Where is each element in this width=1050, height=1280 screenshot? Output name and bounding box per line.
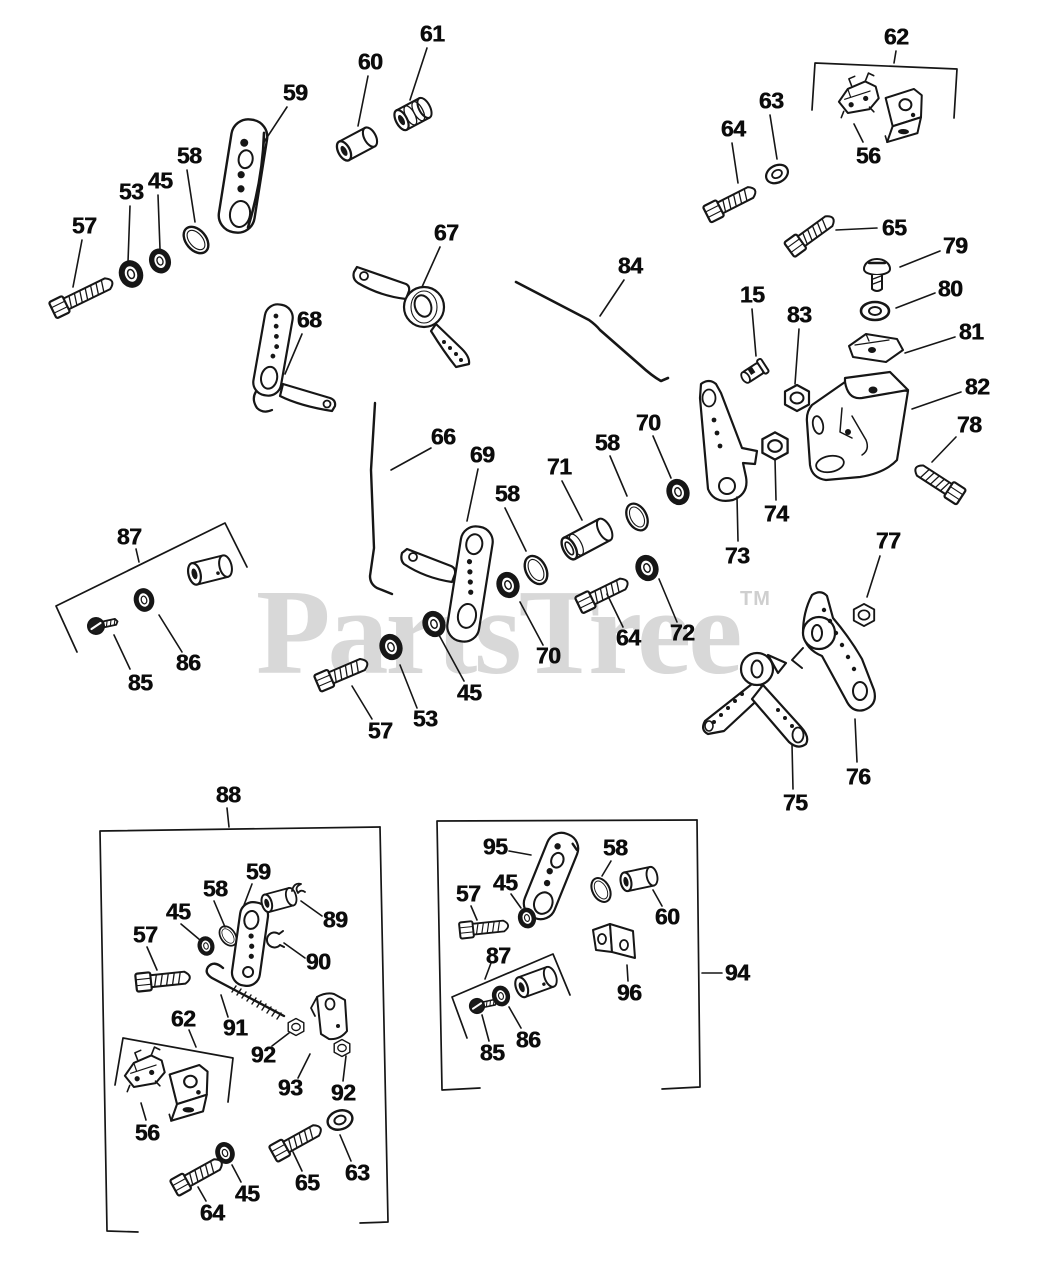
callout-57: 57	[72, 215, 97, 238]
callout-95: 95	[483, 836, 508, 859]
callout-59: 59	[246, 861, 271, 884]
callout-86: 86	[176, 652, 201, 675]
callout-45: 45	[493, 872, 518, 895]
callout-81: 81	[959, 321, 984, 344]
callout-78: 78	[957, 414, 982, 437]
callout-layer: 5753455859606162566364657980818215837867…	[0, 0, 1050, 1280]
callout-64: 64	[616, 627, 641, 650]
callout-93: 93	[278, 1077, 303, 1100]
callout-58: 58	[603, 837, 628, 860]
callout-65: 65	[295, 1172, 320, 1195]
callout-67: 67	[434, 222, 459, 245]
callout-15: 15	[740, 284, 765, 307]
callout-69: 69	[470, 444, 495, 467]
callout-71: 71	[547, 456, 572, 479]
callout-45: 45	[148, 170, 173, 193]
callout-82: 82	[965, 376, 990, 399]
callout-62: 62	[884, 26, 909, 49]
callout-74: 74	[764, 503, 789, 526]
callout-57: 57	[456, 883, 481, 906]
callout-61: 61	[420, 23, 445, 46]
callout-56: 56	[135, 1122, 160, 1145]
callout-53: 53	[413, 708, 438, 731]
callout-66: 66	[431, 426, 456, 449]
callout-58: 58	[203, 878, 228, 901]
callout-94: 94	[725, 962, 750, 985]
callout-70: 70	[536, 645, 561, 668]
callout-92: 92	[251, 1044, 276, 1067]
callout-75: 75	[783, 792, 808, 815]
callout-72: 72	[670, 622, 695, 645]
callout-88: 88	[216, 784, 241, 807]
callout-60: 60	[358, 51, 383, 74]
callout-64: 64	[721, 118, 746, 141]
callout-90: 90	[306, 951, 331, 974]
callout-89: 89	[323, 909, 348, 932]
callout-87: 87	[486, 945, 511, 968]
callout-62: 62	[171, 1008, 196, 1031]
callout-65: 65	[882, 217, 907, 240]
callout-63: 63	[759, 90, 784, 113]
callout-85: 85	[480, 1042, 505, 1065]
callout-45: 45	[457, 682, 482, 705]
callout-63: 63	[345, 1162, 370, 1185]
callout-57: 57	[133, 924, 158, 947]
callout-56: 56	[856, 145, 881, 168]
callout-92: 92	[331, 1082, 356, 1105]
callout-80: 80	[938, 278, 963, 301]
callout-45: 45	[235, 1183, 260, 1206]
callout-83: 83	[787, 304, 812, 327]
callout-96: 96	[617, 982, 642, 1005]
callout-87: 87	[117, 526, 142, 549]
callout-86: 86	[516, 1029, 541, 1052]
callout-57: 57	[368, 720, 393, 743]
callout-84: 84	[618, 255, 643, 278]
callout-58: 58	[177, 145, 202, 168]
callout-59: 59	[283, 82, 308, 105]
callout-58: 58	[595, 432, 620, 455]
callout-73: 73	[725, 545, 750, 568]
parts-diagram-page: PartsTree TM	[0, 0, 1050, 1280]
callout-79: 79	[943, 235, 968, 258]
callout-91: 91	[223, 1017, 248, 1040]
callout-58: 58	[495, 483, 520, 506]
callout-76: 76	[846, 766, 871, 789]
callout-77: 77	[876, 530, 901, 553]
callout-45: 45	[166, 901, 191, 924]
callout-85: 85	[128, 672, 153, 695]
callout-53: 53	[119, 181, 144, 204]
callout-68: 68	[297, 309, 322, 332]
callout-70: 70	[636, 412, 661, 435]
callout-64: 64	[200, 1202, 225, 1225]
callout-60: 60	[655, 906, 680, 929]
